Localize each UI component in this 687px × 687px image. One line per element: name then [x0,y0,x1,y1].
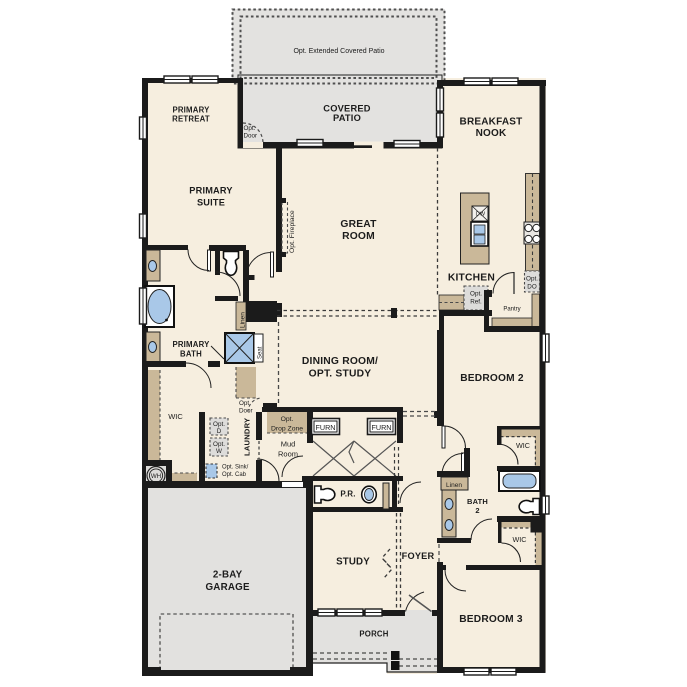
svg-text:DINING ROOM/: DINING ROOM/ [302,356,378,367]
svg-text:NOOK: NOOK [476,128,507,139]
svg-text:SUITE: SUITE [197,198,225,208]
svg-text:PATIO: PATIO [333,113,361,123]
svg-text:GARAGE: GARAGE [205,582,249,593]
svg-text:2-BAY: 2-BAY [213,569,243,580]
svg-text:Ref.: Ref. [470,299,482,306]
svg-text:BREAKFAST: BREAKFAST [460,117,523,128]
svg-text:FOYER: FOYER [402,551,435,561]
svg-text:Door: Door [244,133,258,140]
svg-text:PORCH: PORCH [359,630,388,639]
svg-text:Opt.: Opt. [213,421,225,428]
svg-text:WH: WH [151,473,161,480]
svg-text:STUDY: STUDY [336,557,370,568]
svg-text:Linen: Linen [240,312,247,328]
svg-text:Opt. Extended Covered Patio: Opt. Extended Covered Patio [293,48,384,55]
svg-text:Opt.: Opt. [244,125,256,132]
svg-text:Opt. Fireplace: Opt. Fireplace [289,210,296,253]
svg-text:DO: DO [527,284,537,291]
svg-text:Opt.: Opt. [526,276,538,283]
svg-text:ROOM: ROOM [342,231,375,242]
svg-text:Opt. Sink/: Opt. Sink/ [222,465,249,471]
svg-text:Opt. Cab: Opt. Cab [222,472,247,478]
svg-text:PRIMARY: PRIMARY [172,105,210,114]
svg-text:Linen: Linen [446,482,462,489]
svg-text:PRIMARY: PRIMARY [172,340,210,349]
svg-text:Pantry: Pantry [503,307,520,313]
svg-text:Opt.: Opt. [470,291,482,298]
svg-text:P.R.: P.R. [340,490,355,499]
svg-text:Opt.: Opt. [213,441,225,448]
svg-text:Drop Zone: Drop Zone [271,426,303,433]
svg-text:PRIMARY: PRIMARY [189,186,232,196]
svg-text:BATH: BATH [180,350,202,359]
svg-text:WIC: WIC [516,441,530,450]
svg-text:Seat: Seat [258,346,264,359]
svg-text:BATH: BATH [467,497,488,506]
svg-text:FURN: FURN [316,423,336,432]
svg-text:WIC: WIC [168,412,183,421]
svg-text:GREAT: GREAT [340,219,377,230]
svg-text:WIC: WIC [513,535,527,544]
svg-text:BEDROOM 2: BEDROOM 2 [460,373,524,384]
svg-text:COVERED: COVERED [323,103,370,113]
svg-text:KITCHEN: KITCHEN [448,273,495,284]
svg-text:Mud: Mud [281,440,296,449]
svg-text:D: D [217,428,222,435]
svg-text:LAUNDRY: LAUNDRY [243,418,252,456]
svg-text:OPT. STUDY: OPT. STUDY [309,368,372,379]
svg-text:Opt.: Opt. [281,416,294,423]
svg-text:W: W [216,448,222,455]
svg-text:2: 2 [475,506,479,515]
svg-text:DW: DW [476,212,486,218]
svg-text:BEDROOM 3: BEDROOM 3 [459,614,523,625]
svg-text:Door: Door [239,408,253,415]
svg-text:RETREAT: RETREAT [172,115,210,124]
svg-text:FURN: FURN [372,423,392,432]
